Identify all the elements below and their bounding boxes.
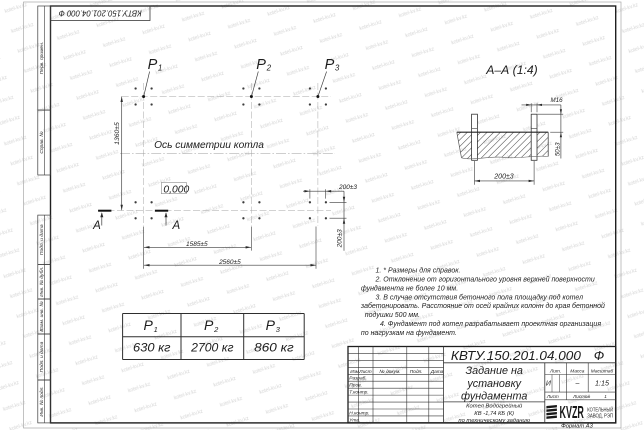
- svg-text:Котел Водогрейный: Котел Водогрейный: [466, 403, 523, 410]
- svg-text:фундамента не более 10 мм.: фундамента не более 10 мм.: [361, 284, 458, 292]
- svg-text:Задание на: Задание на: [465, 365, 523, 377]
- svg-text:Подп.: Подп.: [410, 369, 423, 375]
- svg-text:М16: М16: [550, 97, 563, 104]
- svg-text:Инв. № подл.: Инв. № подл.: [39, 386, 45, 416]
- svg-text:2: 2: [213, 325, 219, 334]
- svg-text:Масштаб: Масштаб: [591, 369, 614, 375]
- svg-text:Н.контр.: Н.контр.: [349, 410, 369, 416]
- svg-text:КВТУ.150.201.04.000: КВТУ.150.201.04.000: [451, 348, 582, 363]
- svg-text:Лист: Лист: [358, 369, 371, 375]
- svg-text:Р: Р: [256, 57, 266, 73]
- svg-text:Инв. № дубл.: Инв. № дубл.: [39, 267, 45, 297]
- svg-text:Лист: Лист: [546, 394, 559, 399]
- svg-text:КОТЕЛЬНЫЙ: КОТЕЛЬНЫЙ: [587, 406, 613, 414]
- svg-text:860 кг: 860 кг: [254, 341, 294, 355]
- svg-text:Разраб.: Разраб.: [349, 376, 366, 382]
- svg-text:КВТУ.150.201.04.000 Ф: КВТУ.150.201.04.000 Ф: [59, 9, 142, 18]
- svg-text:KVZR: KVZR: [560, 402, 585, 422]
- svg-text:Подп. и дата: Подп. и дата: [39, 341, 45, 372]
- svg-text:ЗАВОД, РЭП: ЗАВОД, РЭП: [587, 413, 613, 419]
- svg-text:Р: Р: [266, 317, 276, 333]
- svg-text:КВ -1,74 КБ (К): КВ -1,74 КБ (К): [474, 411, 514, 417]
- svg-text:установку: установку: [466, 378, 521, 390]
- svg-text:Листов: Листов: [572, 394, 590, 399]
- svg-text:Р: Р: [148, 57, 158, 73]
- svg-text:Пров.: Пров.: [349, 383, 362, 389]
- svg-text:Р: Р: [144, 317, 154, 333]
- svg-text:Формат А3: Формат А3: [561, 423, 593, 429]
- svg-text:Справ. №: Справ. №: [39, 131, 45, 153]
- svg-text:Ф: Ф: [594, 348, 604, 363]
- svg-text:200±3: 200±3: [336, 229, 343, 248]
- svg-text:Р: Р: [204, 317, 214, 333]
- svg-text:Р: Р: [325, 57, 335, 73]
- svg-text:Масса: Масса: [570, 369, 585, 375]
- svg-text:1: 1: [604, 394, 607, 399]
- svg-text:200±3: 200±3: [493, 174, 514, 181]
- svg-text:Утв.: Утв.: [349, 417, 360, 423]
- svg-text:1: 1: [154, 325, 158, 334]
- svg-text:–: –: [574, 380, 579, 387]
- svg-text:Т.контр.: Т.контр.: [349, 390, 368, 396]
- svg-text:забетонировать. Расстояние от: забетонировать. Расстояние от осей крайн…: [360, 302, 605, 310]
- svg-text:3. В случае отсутствия бетонно: 3. В случае отсутствия бетонного пола пл…: [376, 293, 584, 301]
- svg-text:1:15: 1:15: [595, 378, 610, 387]
- svg-text:Взам. инв. №: Взам. инв. №: [39, 301, 45, 331]
- svg-text:2. Отклонение от горизонтально: 2. Отклонение от горизонтального уровня …: [375, 276, 595, 284]
- svg-text:фундамента: фундамента: [461, 390, 527, 402]
- svg-text:3: 3: [335, 63, 340, 72]
- svg-text:1360±5: 1360±5: [114, 122, 121, 145]
- svg-text:Ось симметрии котла: Ось симметрии котла: [154, 140, 264, 151]
- svg-text:1585±5: 1585±5: [186, 241, 208, 248]
- svg-text:Дата: Дата: [430, 369, 444, 375]
- svg-text:А–А (1:4): А–А (1:4): [485, 63, 537, 77]
- svg-text:А: А: [92, 220, 101, 232]
- svg-text:1: 1: [158, 63, 162, 72]
- svg-text:630 кг: 630 кг: [133, 341, 171, 355]
- svg-text:Подп. и дата: Подп. и дата: [39, 224, 45, 255]
- svg-text:по техническому заданию: по техническому заданию: [458, 418, 530, 424]
- svg-text:2700 кг: 2700 кг: [190, 341, 233, 355]
- svg-text:Лит.: Лит.: [549, 369, 561, 375]
- svg-text:2560±5: 2560±5: [218, 259, 241, 266]
- svg-text:0,000: 0,000: [163, 184, 189, 195]
- svg-text:2: 2: [266, 63, 272, 72]
- svg-text:№ докум.: № докум.: [380, 369, 401, 375]
- svg-text:А: А: [171, 220, 180, 232]
- svg-text:200±3: 200±3: [338, 184, 357, 191]
- svg-text:4. Фундамент под котел разраба: 4. Фундамент под котел разрабатывает про…: [380, 320, 601, 328]
- svg-text:Перв. примен.: Перв. примен.: [39, 42, 45, 75]
- svg-text:подушки 500 мм.: подушки 500 мм.: [365, 311, 420, 319]
- svg-text:50±3: 50±3: [554, 142, 561, 156]
- svg-text:по нагрузкам на фундамент.: по нагрузкам на фундамент.: [361, 329, 457, 337]
- svg-text:1. * Размеры для справок.: 1. * Размеры для справок.: [376, 267, 461, 275]
